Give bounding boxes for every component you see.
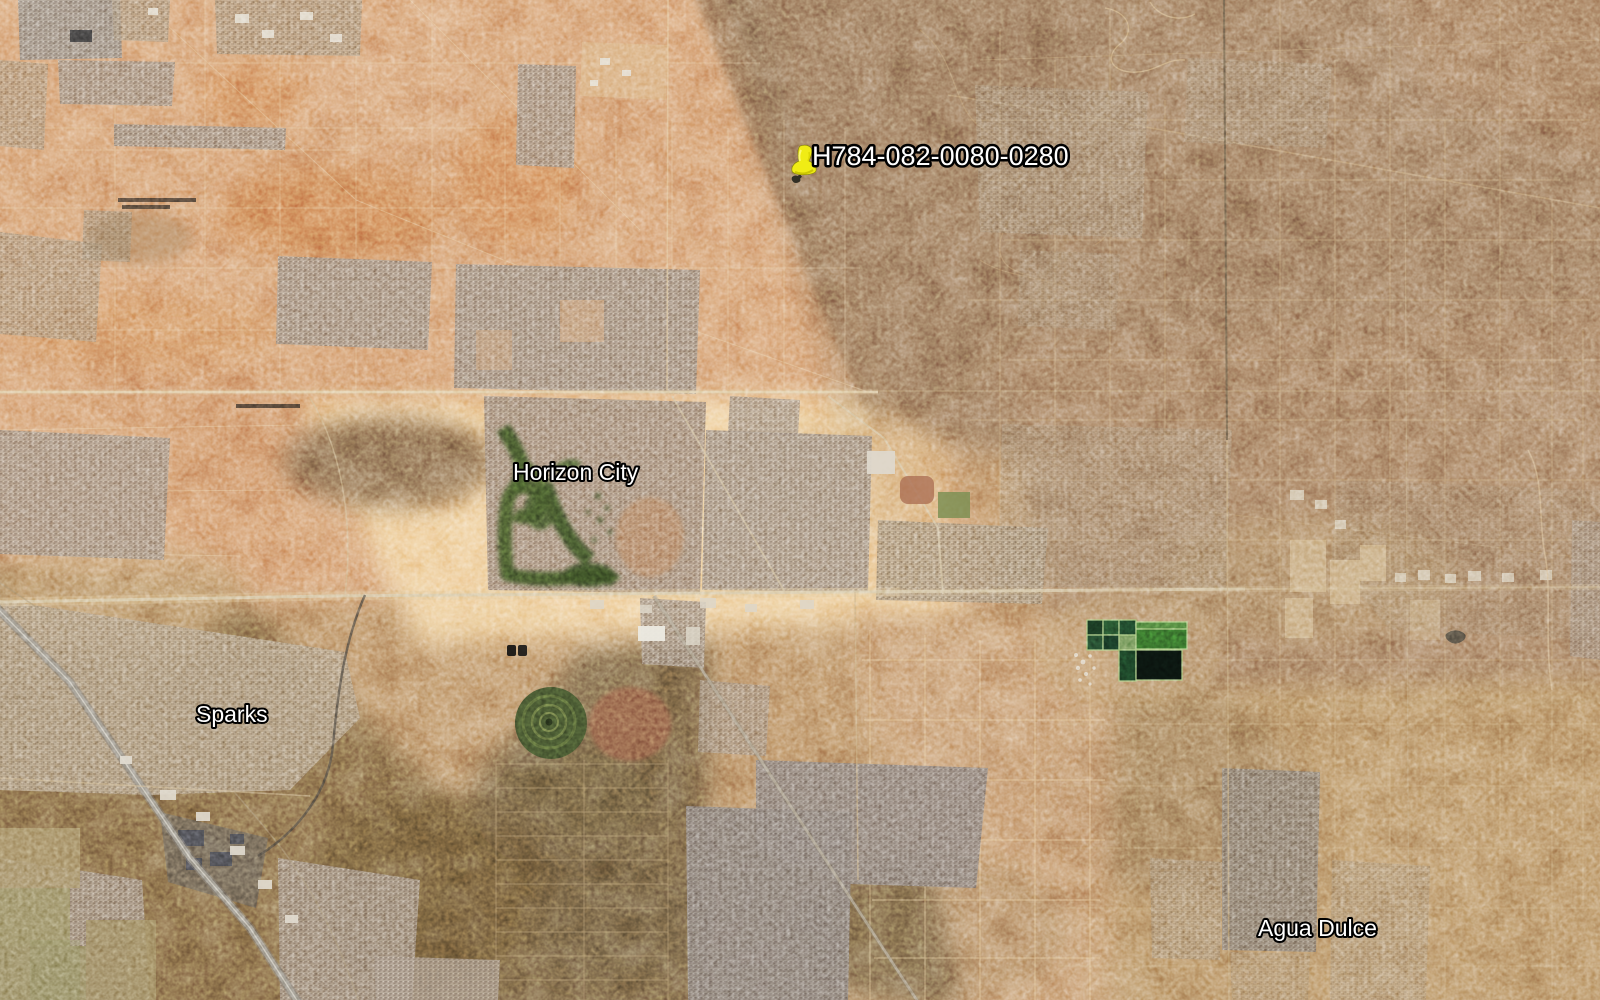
- svg-text:H784-082-0080-0280: H784-082-0080-0280: [812, 141, 1069, 171]
- svg-text:Agua Dulce: Agua Dulce: [1258, 915, 1377, 941]
- svg-text:Horizon City: Horizon City: [513, 459, 639, 485]
- svg-text:Sparks: Sparks: [196, 701, 268, 727]
